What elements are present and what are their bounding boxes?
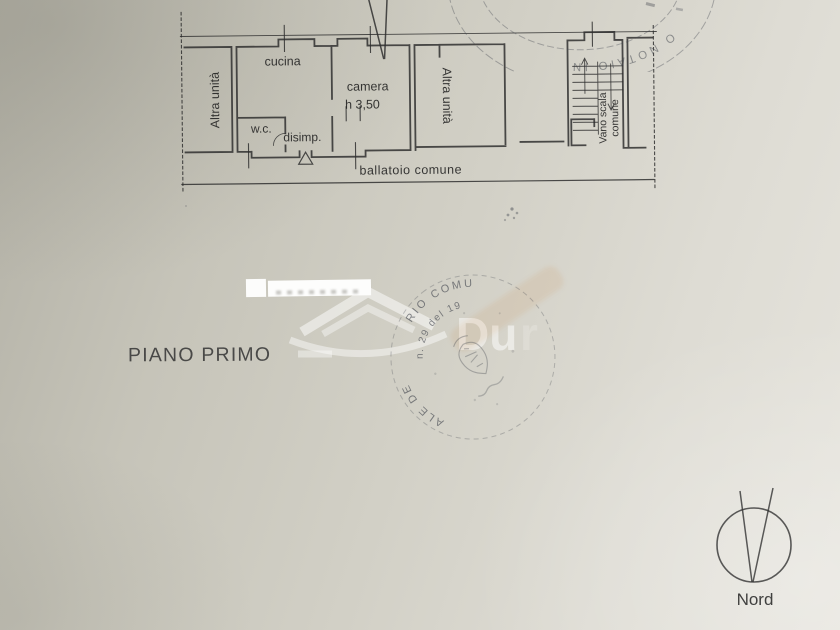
room-label-vano-scala-2: comune <box>609 99 621 137</box>
compass-needle-lines <box>740 488 773 582</box>
municipal-stamp-svg: ALE DE RIO COMU n. 29 del 19 <box>373 257 573 457</box>
north-compass: Nord <box>700 479 820 619</box>
municipal-round-stamp: ALE DE RIO COMU n. 29 del 19 <box>373 257 573 457</box>
stamp-arc-inner <box>480 0 680 50</box>
ink-dot <box>507 214 510 217</box>
ink-dot <box>516 212 519 215</box>
north-compass-svg: Nord <box>700 479 820 619</box>
stamp-coat-of-arms <box>449 331 495 381</box>
room-label-disimpegno: disimp. <box>283 130 321 144</box>
room-label-camera: camera <box>347 79 389 93</box>
room-label-cucina: cucina <box>264 54 300 68</box>
scanned-floorplan-photo: cucina camera h 3,50 w.c. disimp. Altra … <box>0 0 840 630</box>
ballatoio-edge-line <box>182 180 654 185</box>
notary-stamp-svg: O NOTAIO IN <box>428 0 728 72</box>
floor-title: PIANO PRIMO <box>128 344 271 368</box>
compass-label: Nord <box>737 590 774 609</box>
compass-circle <box>717 508 791 582</box>
stamp-ring-text-b: RIO COMU <box>400 264 480 335</box>
redacted-text-smudge <box>276 289 361 294</box>
redaction-box-long <box>268 279 371 296</box>
room-label-ballatoio: ballatoio comune <box>359 163 462 178</box>
ink-dot <box>510 207 513 210</box>
room-label-vano-scala-1: Vano scala <box>597 92 610 143</box>
svg-text:n. 29 del 19: n. 29 del 19 <box>400 296 476 365</box>
svg-text:ALE DE: ALE DE <box>397 376 449 434</box>
room-label-altra-unita-left: Altra unità <box>208 72 223 128</box>
pointer-arrow <box>369 0 388 58</box>
svg-text:RIO COMU: RIO COMU <box>400 264 480 335</box>
room-label-altra-unita-right: Altra unità <box>440 67 455 123</box>
stamp-ring-text-a: ALE DE <box>397 376 449 434</box>
notary-stamp-partial: O NOTAIO IN <box>428 0 728 72</box>
stamp-inner-text: n. 29 del 19 <box>400 296 476 365</box>
entrance-triangle-marker <box>299 152 313 164</box>
room-label-wc: w.c. <box>250 122 272 136</box>
ink-dot <box>513 217 515 219</box>
room-label-camera-height: h 3,50 <box>345 97 380 111</box>
ink-dot <box>185 205 187 207</box>
redaction-box-small <box>246 279 266 297</box>
ink-dot <box>504 219 506 221</box>
stamp-bottom-squiggle <box>478 376 505 398</box>
